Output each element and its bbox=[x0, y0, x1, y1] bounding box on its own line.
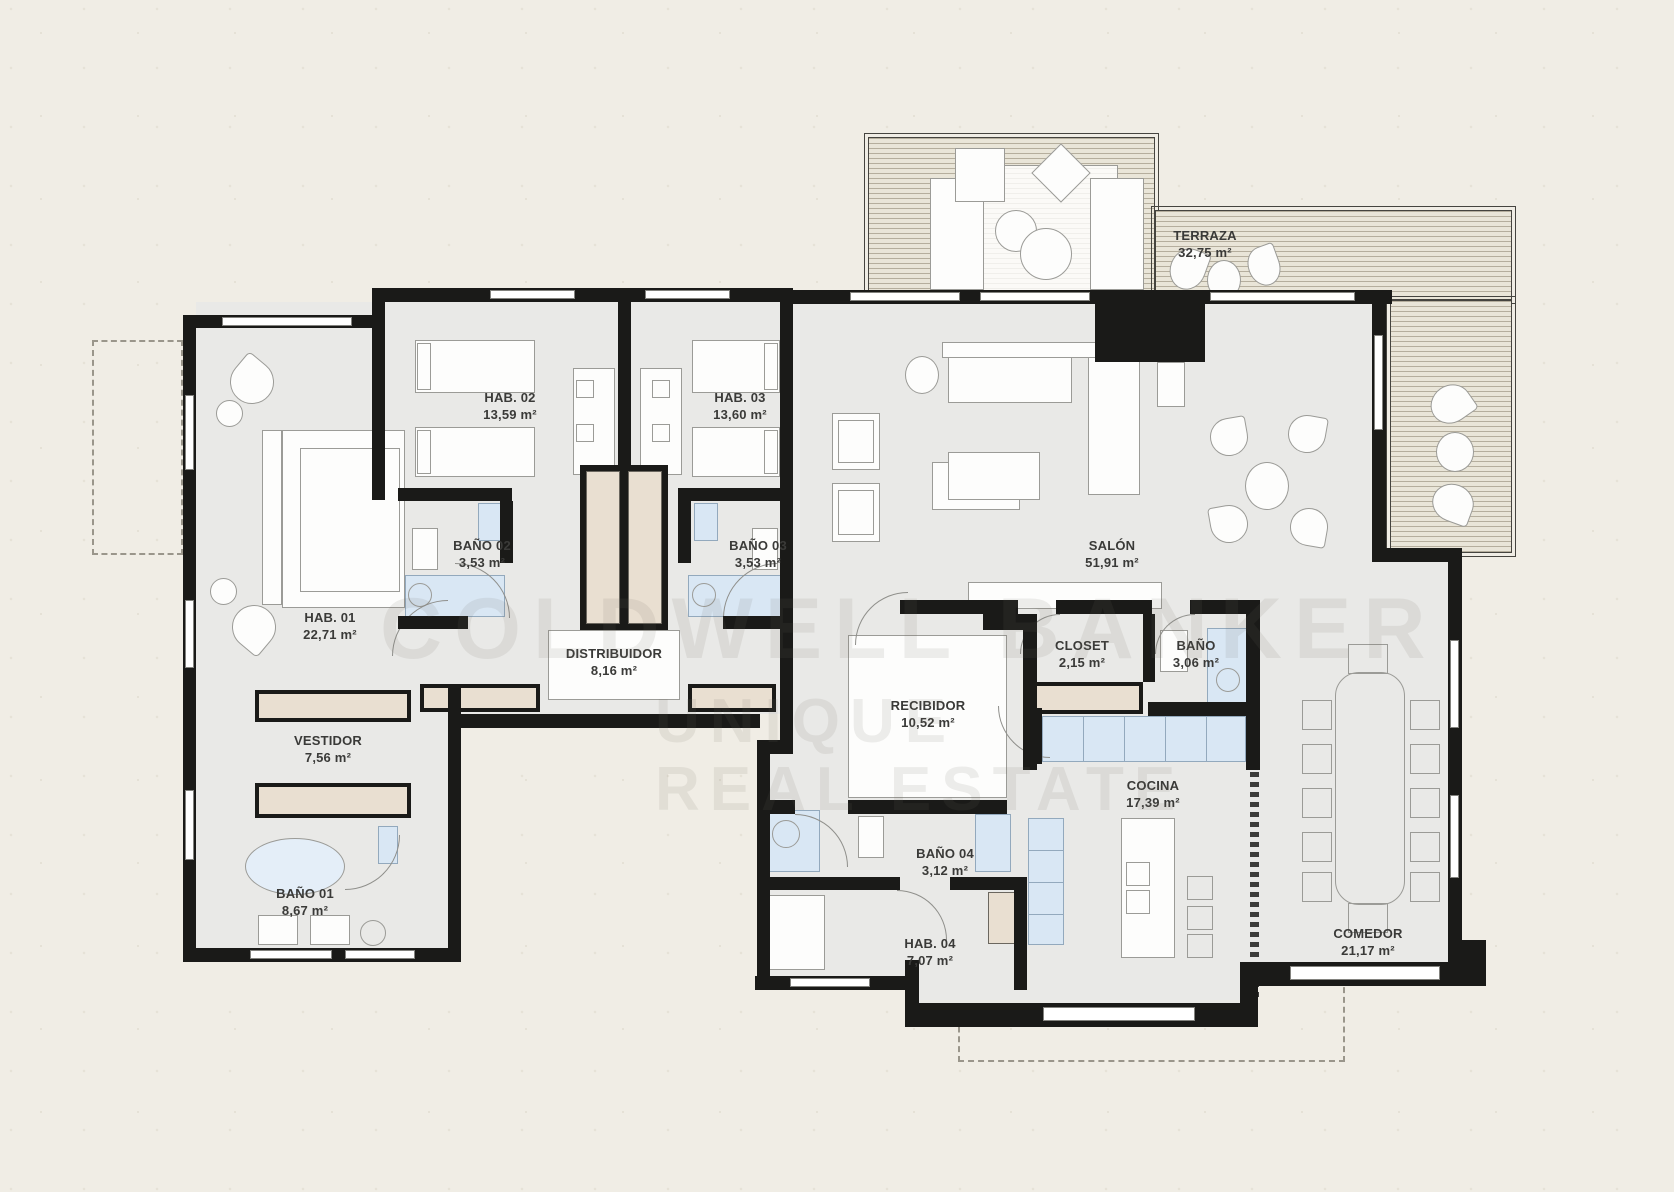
window bbox=[645, 290, 730, 299]
wall bbox=[372, 288, 385, 500]
room-label-recibidor: RECIBIDOR 10,52 m² bbox=[891, 698, 966, 732]
room-name: RECIBIDOR bbox=[891, 698, 966, 715]
wall bbox=[1143, 614, 1155, 682]
room-label-bano: BAÑO 3,06 m² bbox=[1173, 638, 1219, 672]
room-label-bano03: BAÑO 03 3,53 m² bbox=[729, 538, 787, 572]
window bbox=[1210, 292, 1355, 301]
wardrobe bbox=[255, 690, 411, 722]
room-label-hab04: HAB. 04 7,07 m² bbox=[904, 936, 955, 970]
room-label-closet: CLOSET 2,15 m² bbox=[1055, 638, 1109, 672]
floor-lamp bbox=[216, 400, 243, 427]
room-name: HAB. 04 bbox=[904, 936, 955, 953]
window bbox=[222, 317, 352, 326]
coffee-table bbox=[948, 452, 1040, 500]
bed-mattress bbox=[300, 448, 400, 592]
wardrobe bbox=[255, 783, 411, 818]
dining-chair bbox=[1302, 744, 1332, 774]
room-name: HAB. 03 bbox=[713, 390, 767, 407]
sink bbox=[858, 816, 884, 858]
wall bbox=[448, 714, 760, 728]
kitchen-counter bbox=[1042, 716, 1246, 762]
wall bbox=[398, 616, 468, 629]
shower-tray bbox=[694, 503, 718, 541]
wall bbox=[1056, 600, 1152, 614]
window bbox=[250, 950, 332, 959]
wall bbox=[1246, 600, 1260, 770]
terrace-side-table bbox=[955, 148, 1005, 202]
toilet bbox=[975, 814, 1011, 872]
room-label-salon: SALÓN 51,91 m² bbox=[1085, 538, 1139, 572]
room-area: 7,56 m² bbox=[294, 750, 362, 767]
dashed-outline-left bbox=[92, 340, 183, 555]
wardrobe-door bbox=[586, 471, 620, 624]
bar-stool bbox=[1187, 876, 1213, 900]
bed-pillow bbox=[417, 430, 431, 474]
room-label-bano01: BAÑO 01 8,67 m² bbox=[276, 886, 334, 920]
wall-corner bbox=[1460, 940, 1486, 986]
window bbox=[185, 395, 194, 470]
shower-head bbox=[360, 920, 386, 946]
room-label-cocina: COCINA 17,39 m² bbox=[1126, 778, 1180, 812]
desk-chair bbox=[652, 380, 670, 398]
wardrobe bbox=[420, 684, 540, 712]
wardrobe-door bbox=[628, 471, 662, 624]
wall bbox=[1014, 877, 1027, 990]
dining-chair bbox=[1410, 700, 1440, 730]
room-name: COCINA bbox=[1126, 778, 1180, 795]
wall-column bbox=[1095, 290, 1205, 362]
wall bbox=[900, 600, 1018, 614]
desk-chair bbox=[652, 424, 670, 442]
armchair-cushion bbox=[838, 420, 874, 463]
room-name: SALÓN bbox=[1085, 538, 1139, 555]
floor-plan: TERRAZA 32,75 m² HAB. 02 13,59 m² HAB. 0… bbox=[0, 0, 1674, 1192]
wall bbox=[848, 800, 1007, 814]
room-name: HAB. 01 bbox=[303, 610, 357, 627]
bed bbox=[762, 895, 825, 970]
bar-stool bbox=[1187, 934, 1213, 958]
room-name: HAB. 02 bbox=[483, 390, 537, 407]
wall bbox=[398, 488, 512, 501]
room-area: 8,16 m² bbox=[566, 663, 662, 680]
dining-chair bbox=[1410, 788, 1440, 818]
room-area: 17,39 m² bbox=[1126, 795, 1180, 812]
window bbox=[980, 292, 1090, 301]
room-name: DISTRIBUIDOR bbox=[566, 646, 662, 663]
terrace-round-table bbox=[1436, 432, 1474, 472]
bed-headboard bbox=[262, 430, 282, 605]
dining-chair bbox=[1410, 744, 1440, 774]
room-area: 21,17 m² bbox=[1333, 943, 1402, 960]
dining-chair bbox=[1410, 832, 1440, 862]
terrace-sofa bbox=[1090, 178, 1144, 290]
floor-lamp bbox=[210, 578, 237, 605]
room-area: 3,53 m² bbox=[729, 555, 787, 572]
wall bbox=[1372, 548, 1462, 562]
window bbox=[1290, 966, 1440, 980]
room-name: TERRAZA bbox=[1173, 228, 1237, 245]
wardrobe bbox=[688, 684, 776, 712]
window bbox=[790, 978, 870, 987]
bed-pillow bbox=[417, 343, 431, 390]
room-name: COMEDOR bbox=[1333, 926, 1402, 943]
window bbox=[1374, 335, 1383, 430]
dining-chair bbox=[1410, 872, 1440, 902]
sink bbox=[412, 528, 438, 570]
room-area: 3,53 m² bbox=[453, 555, 511, 572]
window bbox=[850, 292, 960, 301]
window bbox=[490, 290, 575, 299]
floor-cocina-south bbox=[919, 962, 1240, 1003]
dining-table bbox=[1335, 672, 1405, 905]
dining-chair bbox=[1302, 872, 1332, 902]
window bbox=[185, 790, 194, 860]
room-name: BAÑO bbox=[1173, 638, 1219, 655]
dining-chair bbox=[1302, 788, 1332, 818]
wall bbox=[780, 288, 793, 740]
desk-chair bbox=[576, 380, 594, 398]
window bbox=[345, 950, 415, 959]
wall bbox=[678, 501, 691, 563]
room-name: CLOSET bbox=[1055, 638, 1109, 655]
window bbox=[1450, 640, 1459, 728]
window bbox=[1043, 1007, 1195, 1021]
dining-chair bbox=[1302, 832, 1332, 862]
room-label-bano04: BAÑO 04 3,12 m² bbox=[916, 846, 974, 880]
wall bbox=[723, 616, 793, 629]
wall bbox=[1148, 702, 1260, 716]
room-label-distribuidor: DISTRIBUIDOR 8,16 m² bbox=[566, 646, 662, 680]
sofa-seat bbox=[948, 357, 1072, 403]
window bbox=[1450, 795, 1459, 878]
room-label-hab03: HAB. 03 13,60 m² bbox=[713, 390, 767, 424]
room-area: 8,67 m² bbox=[276, 903, 334, 920]
bed bbox=[415, 340, 535, 393]
room-label-bano02: BAÑO 02 3,53 m² bbox=[453, 538, 511, 572]
room-label-hab02: HAB. 02 13,59 m² bbox=[483, 390, 537, 424]
room-area: 22,71 m² bbox=[303, 627, 357, 644]
kitchen-tall-units bbox=[1028, 818, 1064, 945]
bed bbox=[415, 427, 535, 477]
room-area: 2,15 m² bbox=[1055, 655, 1109, 672]
dining-chair bbox=[1302, 700, 1332, 730]
room-area: 3,12 m² bbox=[916, 863, 974, 880]
room-name: VESTIDOR bbox=[294, 733, 362, 750]
kitchen-island bbox=[1121, 818, 1175, 958]
cabinet bbox=[1157, 362, 1185, 407]
room-area: 32,75 m² bbox=[1173, 245, 1237, 262]
floor-lamp bbox=[905, 356, 939, 394]
armchair-cushion bbox=[838, 490, 874, 535]
bed-pillow bbox=[764, 343, 778, 390]
wall bbox=[757, 877, 900, 890]
room-name: BAÑO 02 bbox=[453, 538, 511, 555]
room-area: 7,07 m² bbox=[904, 953, 955, 970]
room-area: 13,60 m² bbox=[713, 407, 767, 424]
window bbox=[185, 600, 194, 668]
desk-chair bbox=[576, 424, 594, 442]
wall bbox=[1023, 630, 1037, 770]
wall bbox=[448, 688, 461, 962]
bar-stool bbox=[1187, 906, 1213, 930]
room-name: BAÑO 03 bbox=[729, 538, 787, 555]
room-name: BAÑO 01 bbox=[276, 886, 334, 903]
room-name: BAÑO 04 bbox=[916, 846, 974, 863]
wall bbox=[757, 800, 795, 814]
terrace-coffee-table bbox=[1020, 228, 1072, 280]
wall bbox=[618, 288, 631, 468]
wall bbox=[678, 488, 793, 501]
dining-chair bbox=[1348, 644, 1388, 674]
wall bbox=[1448, 562, 1462, 962]
room-area: 13,59 m² bbox=[483, 407, 537, 424]
bed-pillow bbox=[764, 430, 778, 474]
island-sink bbox=[1126, 862, 1150, 886]
room-label-comedor: COMEDOR 21,17 m² bbox=[1333, 926, 1402, 960]
room-label-vestidor: VESTIDOR 7,56 m² bbox=[294, 733, 362, 767]
room-label-terraza: TERRAZA 32,75 m² bbox=[1173, 228, 1237, 262]
room-label-hab01: HAB. 01 22,71 m² bbox=[303, 610, 357, 644]
round-table bbox=[1245, 462, 1289, 510]
shower-head bbox=[692, 583, 716, 607]
wall bbox=[983, 614, 1037, 630]
room-area: 51,91 m² bbox=[1085, 555, 1139, 572]
wall bbox=[757, 740, 770, 990]
sofa-chaise bbox=[1088, 357, 1140, 495]
shower-head bbox=[1216, 668, 1240, 692]
room-area: 10,52 m² bbox=[891, 715, 966, 732]
room-area: 3,06 m² bbox=[1173, 655, 1219, 672]
shower-tray bbox=[478, 503, 502, 541]
island-hob bbox=[1126, 890, 1150, 914]
